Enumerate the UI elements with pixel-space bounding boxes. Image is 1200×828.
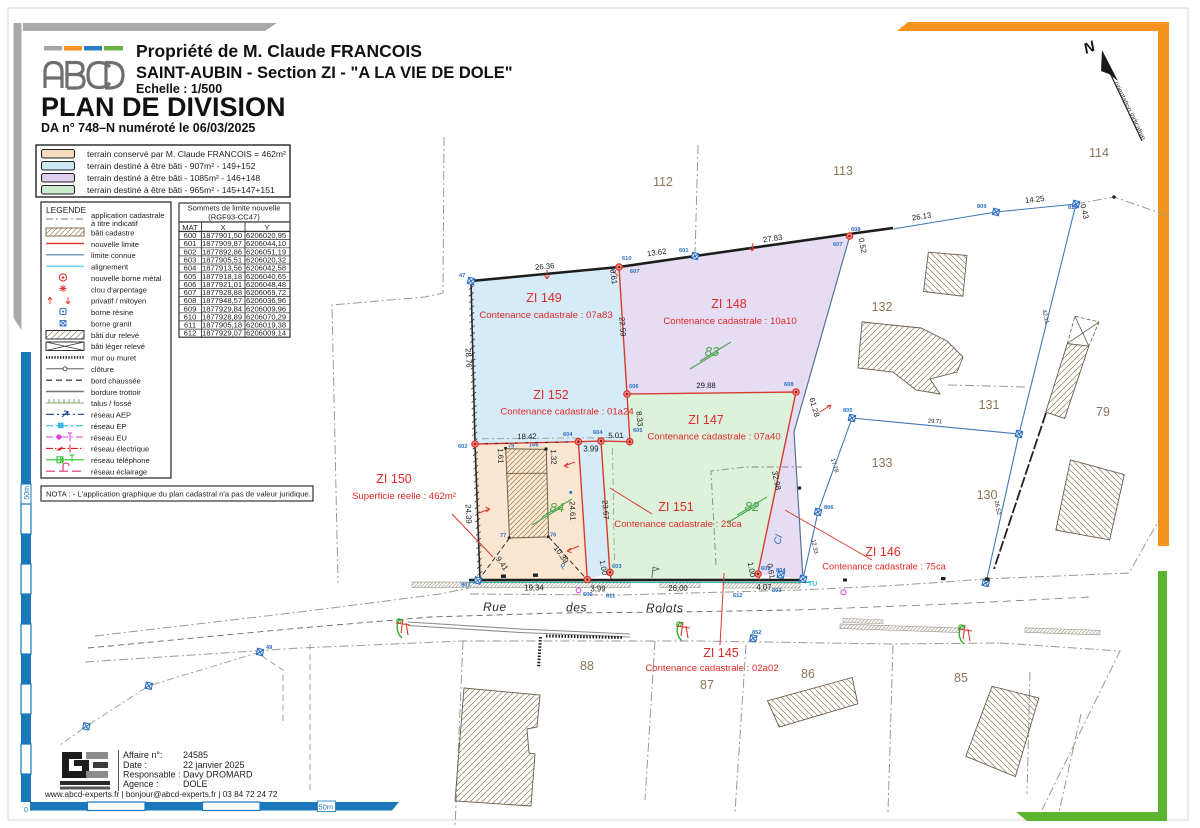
svg-text:133: 133	[872, 456, 893, 470]
svg-text:114: 114	[1089, 146, 1109, 160]
svg-text:610: 610	[622, 256, 632, 262]
svg-text:607: 607	[630, 269, 640, 275]
svg-text:8.33: 8.33	[634, 411, 645, 427]
svg-text:29.71: 29.71	[928, 419, 943, 426]
svg-text:NOTA : - L'application graphiq: NOTA : - L'application graphique du plan…	[46, 490, 311, 499]
svg-text:ZI 145: ZI 145	[703, 646, 738, 660]
svg-text:Date :: Date :	[123, 760, 147, 770]
svg-text:1.32: 1.32	[549, 449, 559, 464]
svg-text:22.59: 22.59	[617, 317, 627, 337]
svg-text:18.42: 18.42	[517, 432, 537, 441]
svg-text:810: 810	[1068, 205, 1078, 211]
svg-text:85: 85	[954, 671, 968, 685]
svg-text:(RGF93-CC47): (RGF93-CC47)	[208, 213, 260, 222]
svg-text:Rolots: Rolots	[646, 601, 684, 615]
svg-text:DA n° 748–N numéroté le 06/03/: DA n° 748–N numéroté le 06/03/2025	[41, 121, 255, 135]
svg-text:LEGENDE: LEGENDE	[46, 205, 86, 215]
svg-text:606: 606	[629, 384, 639, 390]
svg-text:29.88: 29.88	[696, 381, 716, 390]
svg-text:88: 88	[580, 659, 594, 673]
svg-text:mur ou muret: mur ou muret	[91, 354, 137, 363]
svg-text:132: 132	[872, 300, 893, 314]
svg-text:TU: TU	[808, 581, 817, 588]
svg-text:privatif / mitoyen: privatif / mitoyen	[91, 297, 146, 306]
svg-text:5.01: 5.01	[608, 431, 623, 440]
svg-text:Contenance cadastrale : 23ca: Contenance cadastrale : 23ca	[614, 519, 742, 530]
svg-text:26,00: 26,00	[668, 584, 688, 593]
svg-text:612: 612	[184, 329, 197, 338]
svg-text:602: 602	[458, 444, 468, 450]
svg-text:3,99: 3,99	[590, 585, 605, 594]
svg-text:limite connue: limite connue	[91, 251, 136, 260]
svg-text:bordure trottoir: bordure trottoir	[91, 388, 141, 397]
svg-text:réseau téléphone: réseau téléphone	[91, 456, 150, 465]
svg-text:604: 604	[593, 430, 603, 436]
svg-text:talus / fossé: talus / fossé	[91, 399, 132, 408]
svg-text:608: 608	[851, 227, 861, 233]
svg-text:19,34: 19,34	[524, 584, 544, 593]
svg-text:0: 0	[24, 794, 28, 801]
svg-text:réseau AEP: réseau AEP	[91, 411, 131, 420]
svg-text:ZI 148: ZI 148	[711, 297, 746, 311]
svg-text:612: 612	[733, 593, 743, 599]
svg-text:50m: 50m	[319, 803, 334, 812]
svg-text:Contenance cadastrale : 10a10: Contenance cadastrale : 10a10	[663, 316, 796, 327]
svg-text:www.abcd-experts.fr | bonjour@: www.abcd-experts.fr | bonjour@abcd-exper…	[44, 790, 278, 799]
svg-text:113: 113	[833, 164, 853, 178]
svg-text:Sommets de limite nouvelle: Sommets de limite nouvelle	[188, 204, 281, 213]
svg-text:Rue: Rue	[483, 600, 507, 614]
svg-text:SAINT-AUBIN - Section ZI - "A: SAINT-AUBIN - Section ZI - "A LA VIE DE …	[136, 64, 513, 82]
svg-text:3.99: 3.99	[583, 445, 598, 454]
svg-text:terrain destiné à être bâti -: terrain destiné à être bâti - 907m² - 14…	[87, 161, 256, 171]
svg-text:bord chaussée: bord chaussée	[91, 376, 141, 385]
svg-text:borne granit: borne granit	[91, 319, 132, 328]
svg-text:601: 601	[679, 248, 689, 254]
svg-text:608: 608	[784, 382, 794, 388]
svg-text:Contenance cadastrale : 01a24: Contenance cadastrale : 01a24	[500, 407, 634, 418]
svg-text:803: 803	[772, 588, 782, 594]
svg-text:805: 805	[843, 408, 853, 414]
svg-text:79: 79	[1096, 405, 1110, 419]
svg-text:ZI 149: ZI 149	[526, 291, 561, 305]
svg-text:600: 600	[583, 592, 593, 598]
svg-text:76: 76	[550, 533, 556, 539]
svg-text:terrain destiné à être bâti -: terrain destiné à être bâti - 965m² - 14…	[87, 185, 275, 195]
svg-text:ZI 151: ZI 151	[658, 500, 693, 514]
svg-text:24.39: 24.39	[464, 504, 474, 524]
svg-text:86: 86	[801, 667, 815, 681]
svg-text:609: 609	[761, 566, 771, 572]
svg-text:82: 82	[745, 499, 760, 514]
svg-text:bâti dur relevé: bâti dur relevé	[91, 331, 139, 340]
svg-text:alignement: alignement	[91, 263, 129, 272]
svg-text:bâti cadastre: bâti cadastre	[91, 229, 134, 238]
svg-text:réseau EU: réseau EU	[91, 433, 127, 442]
svg-text:Contenance cadastrale : 02a02: Contenance cadastrale : 02a02	[645, 663, 778, 674]
svg-text:Superficie réelle : 462m²: Superficie réelle : 462m²	[352, 491, 457, 502]
svg-text:Affaire n°:: Affaire n°:	[123, 750, 162, 760]
svg-text:809: 809	[977, 204, 987, 210]
svg-text:Responsable :: Responsable :	[123, 770, 181, 780]
svg-text:50m: 50m	[24, 486, 31, 500]
svg-text:DOLE: DOLE	[183, 779, 208, 789]
svg-text:79: 79	[508, 444, 514, 450]
svg-text:ZI 147: ZI 147	[688, 413, 723, 427]
svg-text:49: 49	[266, 645, 272, 651]
svg-text:Contenance cadastrale : 75ca: Contenance cadastrale : 75ca	[822, 562, 946, 572]
svg-text:nouvelle borne métal: nouvelle borne métal	[91, 274, 162, 283]
svg-text:130: 130	[977, 488, 998, 502]
svg-text:ZI 146: ZI 146	[865, 545, 900, 559]
svg-text:borne résine: borne résine	[91, 308, 133, 317]
svg-text:réseau éclairage: réseau éclairage	[91, 467, 147, 476]
svg-text:806: 806	[824, 505, 834, 511]
svg-text:24.61: 24.61	[567, 501, 577, 521]
svg-text:clôture: clôture	[91, 365, 114, 374]
svg-text:611: 611	[606, 594, 615, 600]
svg-text:PLAN DE DIVISION: PLAN DE DIVISION	[41, 92, 286, 122]
svg-text:607: 607	[833, 242, 843, 248]
svg-text:852: 852	[752, 630, 762, 636]
svg-text:0: 0	[24, 807, 28, 814]
svg-text:28.76: 28.76	[463, 348, 473, 368]
svg-text:1877929,07: 1877929,07	[202, 329, 242, 338]
svg-text:604: 604	[563, 432, 573, 438]
svg-text:23.67: 23.67	[600, 500, 610, 520]
svg-text:bâti léger relevé: bâti léger relevé	[91, 342, 145, 351]
svg-text:605: 605	[633, 428, 643, 434]
svg-text:réseau électrique: réseau électrique	[91, 445, 149, 454]
svg-text:112: 112	[653, 175, 673, 189]
svg-text:603: 603	[612, 564, 622, 570]
svg-text:901: 901	[461, 583, 471, 589]
svg-text:77: 77	[500, 533, 506, 539]
svg-text:24585: 24585	[183, 750, 208, 760]
svg-text:Contenance cadastrale : 07a83: Contenance cadastrale : 07a83	[479, 310, 612, 321]
svg-text:47: 47	[459, 273, 465, 279]
svg-text:ZI 150: ZI 150	[376, 472, 411, 486]
svg-text:Propriété de M. Claude FRANCOI: Propriété de M. Claude FRANCOIS	[136, 41, 422, 61]
svg-text:4,07: 4,07	[756, 583, 771, 592]
svg-text:terrain destiné à être bâti -: terrain destiné à être bâti - 1085m² - 1…	[87, 173, 260, 183]
svg-text:Contenance cadastrale : 07a40: Contenance cadastrale : 07a40	[647, 432, 780, 443]
svg-text:26.36: 26.36	[535, 261, 555, 272]
svg-text:87: 87	[700, 678, 714, 692]
svg-text:804: 804	[776, 568, 786, 574]
svg-text:terrain conservé par M. Claude: terrain conservé par M. Claude FRANCOIS …	[87, 149, 286, 159]
svg-text:réseau EP: réseau EP	[91, 422, 126, 431]
svg-text:6206009,14: 6206009,14	[246, 329, 286, 338]
svg-text:nouvelle limite: nouvelle limite	[91, 240, 139, 249]
svg-text:Agence :: Agence :	[123, 779, 159, 789]
svg-text:22 janvier 2025: 22 janvier 2025	[183, 760, 245, 770]
svg-text:ZI 152: ZI 152	[533, 388, 568, 402]
svg-text:1.61: 1.61	[496, 448, 506, 463]
svg-text:des: des	[566, 601, 587, 615]
svg-text:131: 131	[979, 398, 1000, 412]
svg-text:Davy DROMARD: Davy DROMARD	[183, 770, 253, 780]
svg-text:clou d'arpentage: clou d'arpentage	[91, 285, 147, 294]
svg-text:à titre indicatif: à titre indicatif	[91, 219, 139, 228]
